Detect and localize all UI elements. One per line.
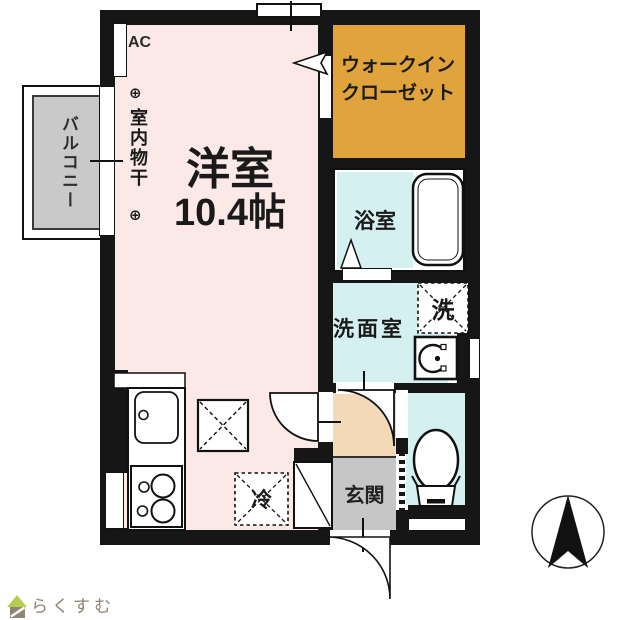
threshold-bath (342, 268, 392, 281)
bathroom-label: 浴室 (337, 172, 413, 268)
entrance-label: 玄関 (333, 458, 396, 528)
washer-label: 洗 (418, 284, 468, 332)
door-arc-entrance (328, 537, 390, 599)
wall-toilet-left-upper (396, 438, 408, 454)
wall-kitchen-left-b (100, 528, 128, 545)
room-title: 洋室 10.4帖 (140, 146, 320, 234)
pole-symbol-top: ⊕ (129, 84, 142, 102)
wall-kitchen-left (100, 370, 128, 473)
room-name: 洋室 (140, 146, 320, 194)
opening-toilet-door (396, 390, 408, 438)
logo-house-icon (7, 595, 27, 618)
refrigerator-label: 冷 (235, 473, 288, 525)
opening-washroom-door (336, 382, 394, 394)
tick-washroom-door (363, 371, 365, 397)
ac-niche (113, 23, 127, 77)
tick-window-top (290, 1, 292, 31)
room-hallway (333, 390, 396, 458)
opening-room-door (318, 392, 333, 442)
ac-label: AC (128, 34, 151, 52)
wall-bottom (100, 530, 480, 545)
window-toilet (408, 518, 466, 531)
tick-room-door (311, 421, 341, 423)
compass-icon (532, 495, 604, 568)
washroom-label: 洗面室 (333, 313, 405, 343)
room-size: 10.4帖 (140, 194, 320, 234)
logo-text: らくすむ (31, 592, 115, 617)
window-top (256, 3, 322, 18)
wall-shoebox-top (294, 448, 332, 462)
window-washroom (469, 338, 480, 379)
closet-label-line2: クローゼット (333, 80, 463, 108)
closet-label: ウォークイン クローゼット (333, 52, 463, 107)
opening-front-door (330, 530, 390, 545)
room-toilet (406, 390, 465, 505)
closet-label-line1: ウォークイン (333, 52, 463, 80)
opening-closet (320, 56, 331, 118)
window-kitchen (105, 472, 124, 529)
floor-plan: AC ⊕ 室内物干 ⊕ 洋室 10.4帖 ウォークイン クローゼット 浴室 洗面… (0, 0, 640, 620)
balcony-label: バルコニー (32, 96, 105, 229)
room-main (115, 25, 318, 530)
wall-toilet-left-lower (396, 510, 408, 532)
